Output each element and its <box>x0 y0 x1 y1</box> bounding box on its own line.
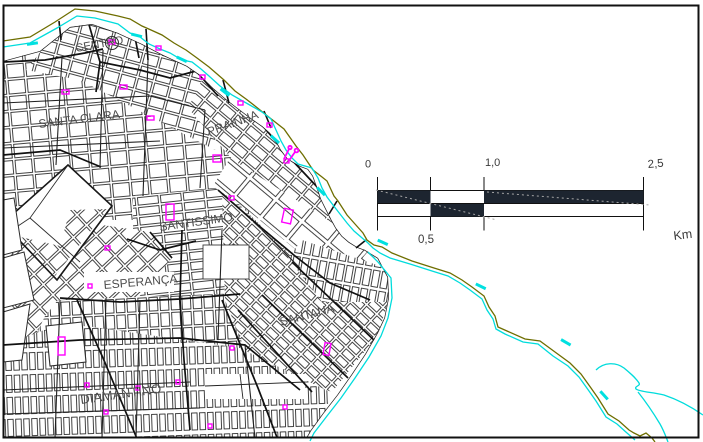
svg-text:1,0: 1,0 <box>485 157 500 169</box>
svg-text:Km: Km <box>673 227 693 243</box>
svg-text:0,5: 0,5 <box>418 234 434 246</box>
svg-text:0: 0 <box>365 159 371 171</box>
svg-text:2,5: 2,5 <box>647 158 664 171</box>
